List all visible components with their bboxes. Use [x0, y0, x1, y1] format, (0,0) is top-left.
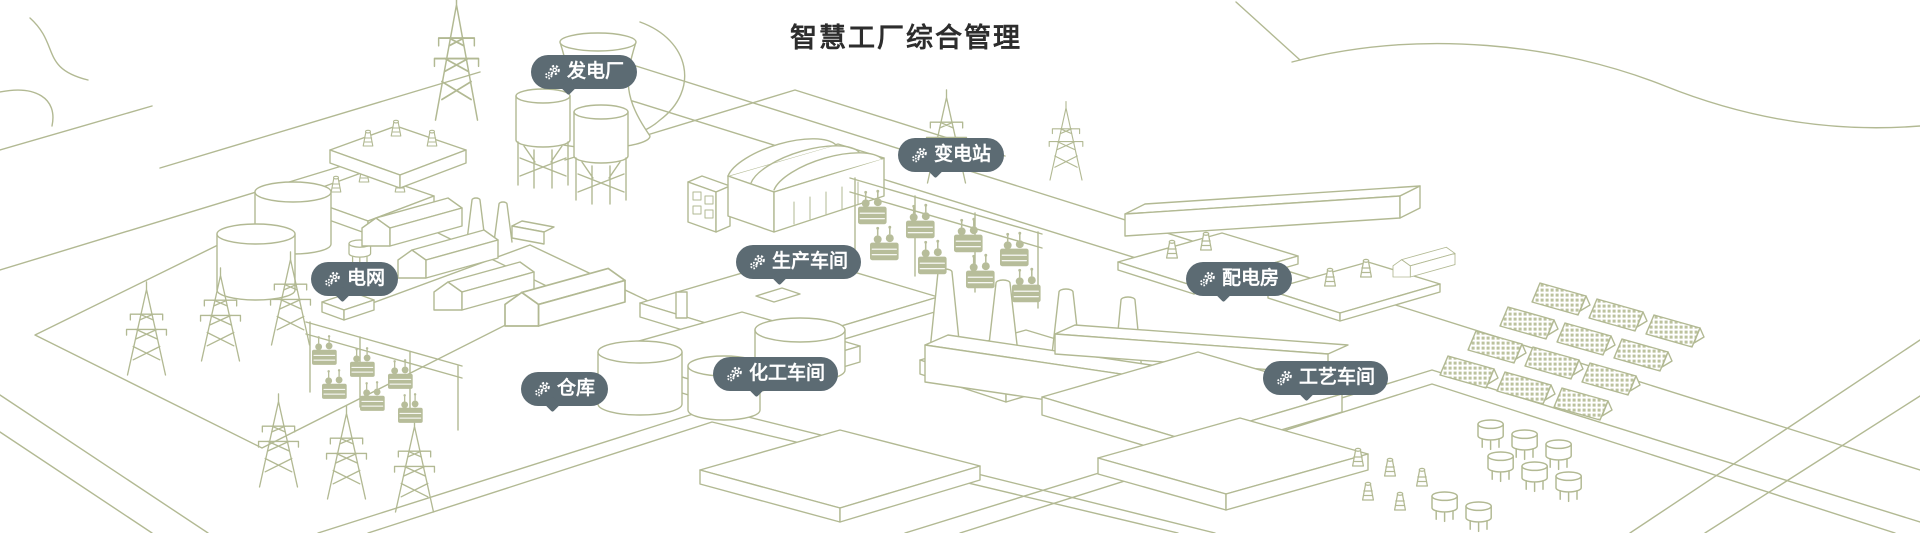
facility-tag-power-plant[interactable]: 发电厂	[531, 55, 637, 89]
facility-tag-distribution-room[interactable]: 配电房	[1186, 262, 1292, 296]
solar-panel-array	[1393, 247, 1704, 420]
gears-icon	[749, 254, 766, 271]
gears-icon	[1276, 370, 1293, 387]
facility-tag-label: 工艺车间	[1299, 368, 1375, 389]
transmission-tower-top	[434, 0, 478, 120]
smart-factory-dashboard: 智慧工厂综合管理 发电厂 变电站 电网 生产车间 配电房 仓库 化工车间 工艺车…	[0, 0, 1920, 533]
facility-tag-label: 生产车间	[772, 252, 848, 273]
gears-icon	[726, 366, 743, 383]
transformer-yard-substation	[850, 90, 1083, 308]
facility-tag-process-workshop[interactable]: 工艺车间	[1263, 361, 1388, 395]
facility-tag-label: 配电房	[1222, 269, 1279, 290]
gears-icon	[911, 147, 928, 164]
facility-tag-warehouse[interactable]: 仓库	[521, 372, 608, 406]
factory-illustration	[0, 0, 1920, 533]
facility-tag-chemical-workshop[interactable]: 化工车间	[713, 357, 838, 391]
facility-tag-label: 化工车间	[749, 364, 825, 385]
gears-icon	[1199, 271, 1216, 288]
small-tank-cluster	[1432, 420, 1581, 531]
facility-tag-label: 电网	[347, 269, 385, 290]
facility-tag-label: 仓库	[557, 379, 595, 400]
gears-icon	[534, 381, 551, 398]
facility-tag-label: 发电厂	[567, 62, 624, 83]
facility-tag-substation[interactable]: 变电站	[898, 138, 1004, 172]
facility-tag-power-grid[interactable]: 电网	[311, 262, 398, 296]
page-title: 智慧工厂综合管理	[790, 16, 1022, 55]
gears-icon	[544, 64, 561, 81]
gears-icon	[324, 271, 341, 288]
facility-tag-production-workshop[interactable]: 生产车间	[736, 245, 861, 279]
facility-tag-label: 变电站	[934, 145, 991, 166]
